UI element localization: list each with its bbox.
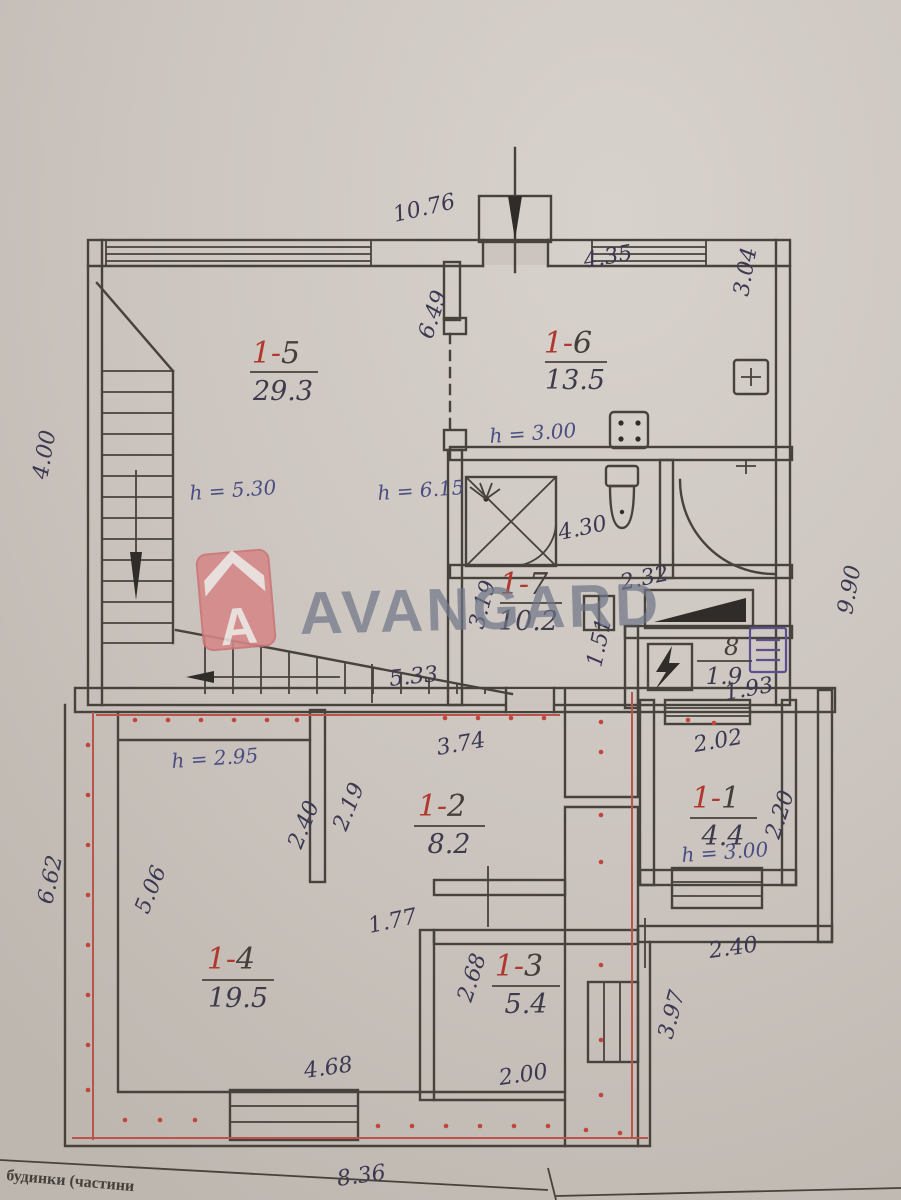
room-area: 29.3 <box>252 376 313 407</box>
room-number: 1- <box>495 949 524 984</box>
room-area: 1.9 <box>706 664 743 690</box>
scanned-floor-plan: 10.76 4.35 3.04 6.49 4.00 4.30 2.32 3.19… <box>0 0 901 1200</box>
room-number: 8 <box>724 633 739 661</box>
floor-plan-canvas: 10.76 4.35 3.04 6.49 4.00 4.30 2.32 3.19… <box>0 0 901 1200</box>
watermark-text: AVANGARD <box>299 571 662 647</box>
dim-label: 5.33 <box>388 662 439 692</box>
avangard-logo-icon: A <box>196 547 277 659</box>
room-number: 1 <box>721 781 740 816</box>
room-number: 1- <box>692 781 721 816</box>
watermark-logo-letter: A <box>217 596 259 657</box>
room-number: 3 <box>524 949 543 984</box>
room-area: 4.4 <box>701 821 745 852</box>
room-number: 4 <box>235 942 255 977</box>
room-number: 1- <box>544 326 573 361</box>
room-number: 1- <box>418 789 447 824</box>
room-number: 1- <box>207 942 236 977</box>
room-number: 2 <box>446 789 466 824</box>
room-area: 8.2 <box>428 829 471 860</box>
room-area: 5.4 <box>505 989 548 1020</box>
room-area: 13.5 <box>545 365 605 396</box>
room-area: 19.5 <box>208 983 268 1014</box>
room-number: 1- <box>252 336 281 371</box>
room-number: 5 <box>281 336 300 371</box>
room-number: 6 <box>573 326 592 361</box>
